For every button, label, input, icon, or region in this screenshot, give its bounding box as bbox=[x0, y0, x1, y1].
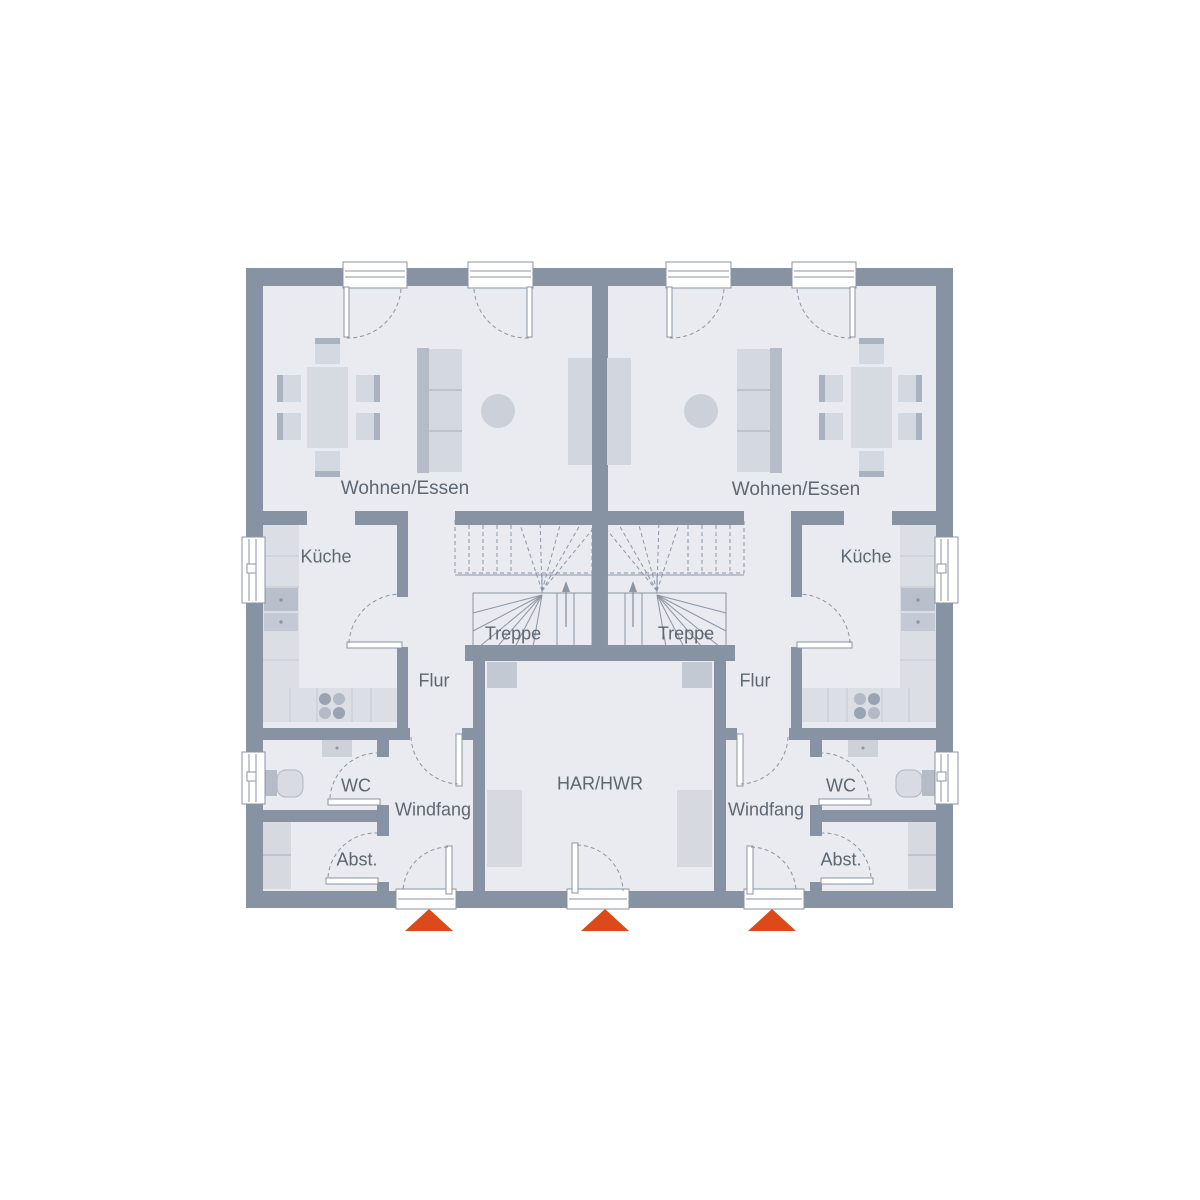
shelf-abst-left bbox=[263, 822, 291, 889]
side-table-left bbox=[481, 394, 515, 428]
entrance-marker-triangle-icon bbox=[581, 909, 629, 931]
toilet-tank bbox=[922, 770, 936, 796]
tv-board-left bbox=[568, 358, 592, 465]
sofa-left bbox=[417, 348, 462, 473]
floor-plan-drawing bbox=[0, 0, 1200, 1200]
window-kitchen-right bbox=[935, 537, 958, 603]
window-terrace-right-2 bbox=[792, 262, 856, 288]
shelf-abst-right bbox=[908, 822, 936, 889]
sofa-right bbox=[737, 348, 782, 473]
floor-plan-page: Wohnen/Essen Wohnen/Essen Küche Küche Tr… bbox=[0, 0, 1200, 1200]
entrance-marker-triangle-icon bbox=[405, 909, 453, 931]
window-terrace-left-1 bbox=[343, 262, 407, 288]
room-label-har-hwr: HAR/HWR bbox=[557, 774, 643, 795]
side-table-right bbox=[684, 394, 718, 428]
room-label-abst-right: Abst. bbox=[820, 850, 861, 871]
room-label-windfang-left: Windfang bbox=[395, 800, 471, 821]
window-terrace-right-1 bbox=[666, 262, 731, 288]
toilet-bowl bbox=[277, 770, 303, 797]
room-label-flur-right: Flur bbox=[740, 671, 771, 692]
room-label-windfang-right: Windfang bbox=[728, 800, 804, 821]
room-label-wc-left: WC bbox=[341, 776, 371, 797]
window-wc-left bbox=[242, 752, 265, 804]
room-label-treppe-right: Treppe bbox=[658, 624, 714, 645]
room-label-flur-left: Flur bbox=[419, 671, 450, 692]
toilet-bowl bbox=[896, 770, 922, 797]
party-wall bbox=[592, 286, 608, 652]
entrance-markers bbox=[405, 909, 796, 931]
entrance-marker-triangle-icon bbox=[748, 909, 796, 931]
window-terrace-left-2 bbox=[468, 262, 533, 288]
room-label-wc-right: WC bbox=[826, 776, 856, 797]
window-kitchen-left bbox=[242, 537, 265, 603]
room-label-wohnen-essen-right: Wohnen/Essen bbox=[732, 479, 861, 501]
dining-table bbox=[851, 367, 892, 448]
room-label-treppe-left: Treppe bbox=[485, 624, 541, 645]
dining-table bbox=[307, 367, 348, 448]
tv-board-right bbox=[607, 358, 631, 465]
room-label-abst-left: Abst. bbox=[336, 850, 377, 871]
room-label-wohnen-essen-left: Wohnen/Essen bbox=[341, 478, 470, 500]
window-wc-right bbox=[935, 752, 958, 804]
room-label-kueche-left: Küche bbox=[300, 547, 351, 568]
room-label-kueche-right: Küche bbox=[840, 547, 891, 568]
